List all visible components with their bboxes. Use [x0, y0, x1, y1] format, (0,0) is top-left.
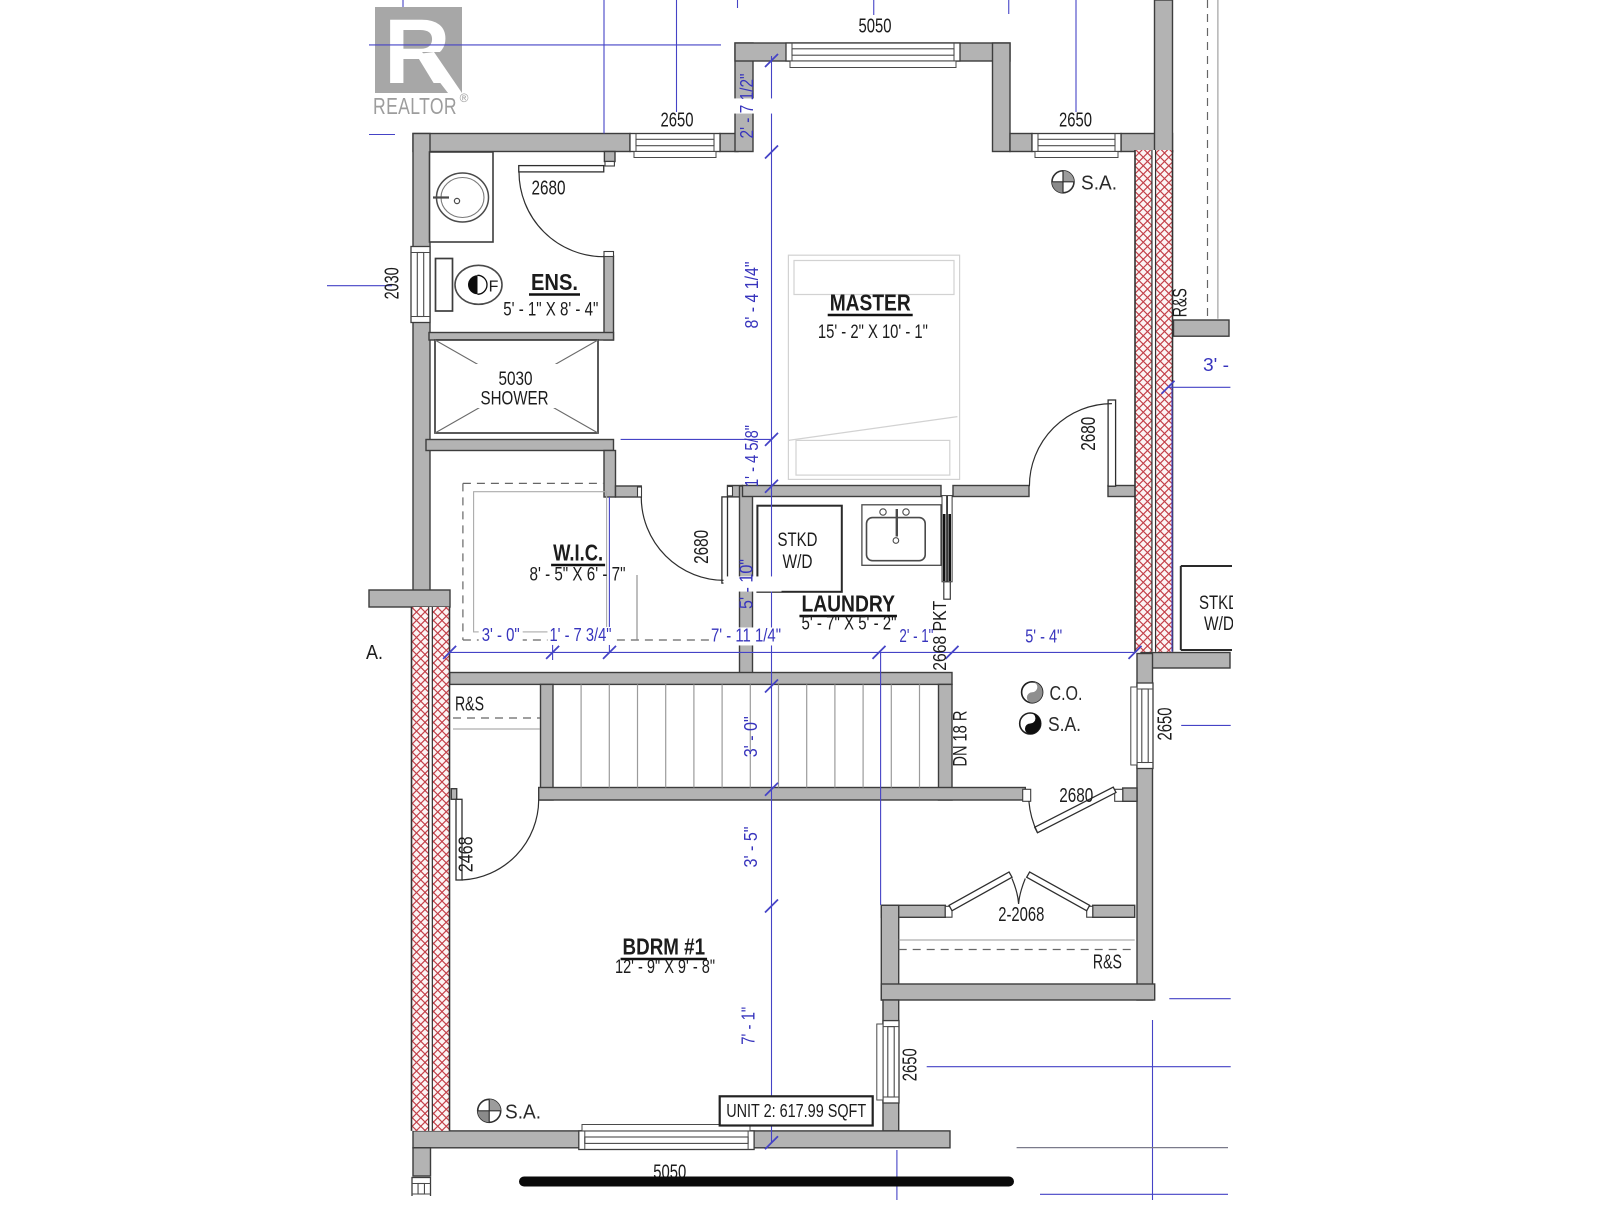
svg-text:MASTER: MASTER	[830, 290, 911, 316]
svg-text:3' - 0": 3' - 0"	[741, 716, 761, 757]
svg-text:5' - 4": 5' - 4"	[1025, 626, 1062, 646]
svg-text:2650: 2650	[1059, 110, 1092, 132]
svg-text:W/D: W/D	[1204, 614, 1234, 635]
svg-text:2680: 2680	[532, 178, 566, 200]
svg-text:UNIT 2: 617.99 SQFT: UNIT 2: 617.99 SQFT	[726, 1101, 866, 1121]
svg-text:REALTOR: REALTOR	[373, 93, 457, 119]
svg-text:3' -: 3' -	[1203, 355, 1229, 375]
svg-text:R&S: R&S	[455, 694, 484, 716]
svg-text:12' - 9" X 9' - 8": 12' - 9" X 9' - 8"	[615, 957, 715, 978]
svg-text:2650: 2650	[900, 1048, 922, 1081]
svg-text:C.O.: C.O.	[1050, 683, 1083, 705]
svg-text:1' - 7 3/4": 1' - 7 3/4"	[550, 625, 612, 645]
svg-text:2680: 2680	[1059, 785, 1093, 807]
svg-text:5030: 5030	[499, 369, 533, 390]
svg-text:W/D: W/D	[783, 552, 813, 573]
svg-text:2680: 2680	[691, 530, 713, 564]
svg-text:3' - 5": 3' - 5"	[741, 827, 761, 868]
svg-text:R&S: R&S	[1093, 952, 1122, 974]
svg-text:5050: 5050	[859, 16, 892, 38]
svg-text:2668 PKT: 2668 PKT	[930, 601, 950, 671]
svg-text:5' - 7" X 5' - 2": 5' - 7" X 5' - 2"	[802, 614, 897, 635]
svg-text:S.A.: S.A.	[1048, 714, 1081, 736]
svg-text:5' - 10": 5' - 10"	[737, 559, 757, 609]
svg-text:BDRM #1: BDRM #1	[623, 934, 706, 960]
svg-text:2650: 2650	[1155, 708, 1177, 741]
svg-text:S.A.: S.A.	[1081, 173, 1117, 195]
svg-text:®: ®	[460, 91, 469, 105]
svg-text:SHOWER: SHOWER	[481, 389, 549, 410]
svg-text:DN 18 R: DN 18 R	[951, 711, 972, 767]
svg-text:R&S: R&S	[1170, 288, 1192, 317]
svg-text:2' - 7 1/2": 2' - 7 1/2"	[737, 74, 757, 139]
svg-text:5' - 1" X 8' - 4": 5' - 1" X 8' - 4"	[503, 300, 598, 321]
svg-text:A.: A.	[366, 642, 383, 664]
svg-text:3' - 0": 3' - 0"	[482, 625, 520, 645]
svg-text:2468: 2468	[456, 836, 478, 872]
svg-text:1' - 4 5/8": 1' - 4 5/8"	[742, 425, 762, 487]
svg-text:2030: 2030	[381, 267, 403, 299]
svg-text:7' - 1": 7' - 1"	[739, 1007, 759, 1045]
svg-text:F: F	[489, 279, 499, 296]
svg-text:2680: 2680	[1078, 417, 1100, 451]
svg-text:15' - 2" X 10' - 1": 15' - 2" X 10' - 1"	[818, 322, 928, 343]
svg-text:STKD: STKD	[778, 530, 818, 551]
svg-text:2650: 2650	[661, 110, 694, 132]
svg-text:2' - 1": 2' - 1"	[899, 626, 933, 646]
svg-text:8' - 4 1/4": 8' - 4 1/4"	[742, 262, 762, 329]
svg-text:8' - 5" X 6' - 7": 8' - 5" X 6' - 7"	[530, 565, 626, 586]
svg-text:ENS.: ENS.	[531, 269, 578, 295]
svg-text:7' - 11 1/4": 7' - 11 1/4"	[711, 626, 781, 646]
svg-text:W.I.C.: W.I.C.	[553, 540, 603, 566]
svg-text:S.A.: S.A.	[505, 1102, 541, 1124]
svg-text:2-2068: 2-2068	[998, 904, 1044, 926]
